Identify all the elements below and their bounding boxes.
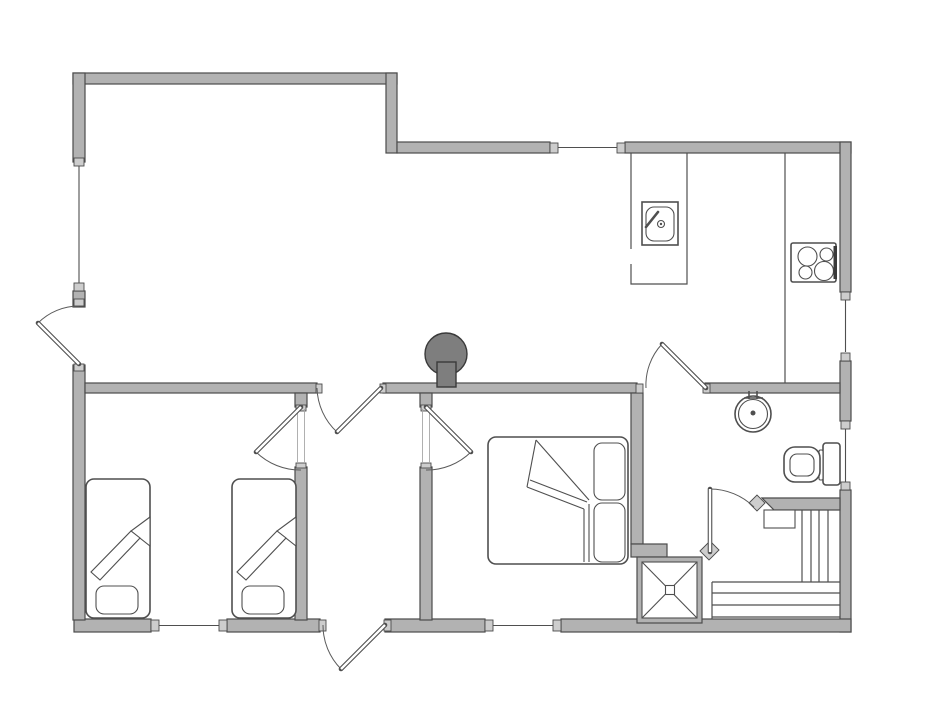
door-hallway-swing-arc	[317, 388, 337, 432]
wall-caps-cap	[485, 620, 493, 631]
exterior-walls-wall-bottom-3	[385, 619, 485, 632]
kitchen-sink	[642, 202, 678, 245]
door-terrace-leaf	[38, 323, 79, 364]
exterior-walls-wall-left-jog	[386, 73, 397, 153]
bed-single-left-pillow	[96, 586, 138, 614]
stove-cooktop-burner-large	[815, 262, 834, 281]
wall-caps-cap	[550, 143, 558, 153]
bed-single-right-pillow	[242, 586, 284, 614]
wall-caps-cap	[151, 620, 159, 631]
door-master-bedroom-swing-arc	[426, 452, 471, 470]
kitchen-sink-drain-dot	[660, 223, 662, 225]
door-entrance	[323, 625, 385, 669]
wall-caps-cap	[74, 158, 84, 166]
interior-walls-wall-bedrooms-top	[85, 383, 317, 393]
bed-double-pillow	[594, 503, 625, 562]
exterior-walls-wall-top-mid	[397, 142, 550, 153]
bed-double-pillow	[594, 443, 625, 500]
floor-plan-canvas	[0, 0, 927, 714]
door-sauna-swing-arc	[710, 489, 754, 507]
door-bathroom-leaf	[662, 344, 706, 388]
wall-caps-cap	[841, 421, 850, 429]
door-entrance-swing-arc	[323, 625, 341, 669]
bed-single-right	[232, 479, 296, 618]
sauna-heater-heater	[764, 510, 795, 528]
exterior-walls-wall-bottom-1	[74, 619, 151, 632]
stove-cooktop-burner-small	[799, 266, 812, 279]
washbasin	[735, 391, 771, 432]
wall-caps-cap	[636, 384, 643, 393]
interior-walls-wall-bath-top	[705, 383, 840, 393]
wall-caps-cap	[617, 143, 625, 153]
exterior-walls-wall-right-upper	[840, 142, 851, 292]
fireplace-flue	[437, 362, 456, 387]
shower	[637, 557, 702, 623]
exterior-walls-wall-left-lower	[73, 365, 85, 620]
exterior-walls-wall-bottom-2	[227, 619, 320, 632]
wall-caps-cap	[74, 283, 84, 291]
stove-cooktop-panel	[834, 246, 838, 279]
sauna-bench-lower	[712, 582, 840, 619]
interior-walls-partition-master	[420, 467, 432, 620]
door-bedroom	[256, 407, 301, 470]
door-bathroom-swing-arc	[646, 344, 662, 388]
exterior-walls-wall-left-upper	[73, 73, 85, 162]
door-bedroom-swing-arc	[256, 452, 301, 470]
stove-cooktop-burner-small	[820, 248, 833, 261]
stove-cooktop	[791, 243, 837, 282]
door-bathroom	[646, 344, 706, 388]
wall-caps-cap	[553, 620, 561, 631]
toilet-cistern	[823, 443, 840, 485]
door-hallway	[317, 388, 381, 432]
door-entrance-leaf	[341, 625, 385, 669]
interior-walls-wall-center-top	[383, 383, 637, 393]
bed-single-left	[86, 479, 150, 618]
washbasin-drain-dot	[751, 411, 756, 416]
interior-walls-wall-master-bath	[631, 393, 643, 544]
toilet	[784, 443, 840, 485]
wall-caps-cap	[421, 463, 431, 468]
wall-caps-cap	[841, 353, 850, 361]
door-terrace-swing-arc	[38, 306, 79, 323]
shower-drain	[666, 586, 675, 595]
door-terrace	[38, 306, 79, 364]
door-sauna	[710, 489, 754, 552]
bed-double	[488, 437, 628, 564]
wall-caps-cap	[219, 620, 227, 631]
exterior-walls-wall-top-right	[625, 142, 851, 153]
wall-caps-cap	[74, 299, 84, 306]
door-hallway-leaf	[337, 388, 381, 432]
door-master-bedroom	[426, 407, 471, 470]
floor-plan-drawing	[0, 0, 927, 714]
exterior-walls-wall-top-left	[73, 73, 397, 84]
door-reveals	[298, 409, 430, 463]
sauna-bench-upper	[802, 510, 828, 582]
interior-walls	[85, 383, 840, 620]
interior-walls-wall-shower-jog	[631, 544, 667, 557]
wall-caps-cap	[841, 482, 850, 490]
sauna-heater	[764, 510, 795, 528]
kitchen-counter	[631, 153, 785, 383]
exterior-walls-wall-bottom-4	[561, 619, 851, 632]
interior-walls-wall-sauna	[762, 498, 840, 510]
door-master-bedroom-leaf	[426, 407, 471, 452]
exterior-walls-wall-right-lower	[840, 490, 851, 632]
fireplace	[425, 333, 467, 387]
wall-caps-cap	[296, 463, 306, 468]
toilet-bowl-inner	[790, 454, 814, 476]
door-bedroom-leaf	[256, 407, 301, 452]
wall-caps-cap	[841, 292, 850, 300]
stove-cooktop-burner-large	[798, 247, 817, 266]
exterior-walls-wall-right-mid	[840, 361, 851, 421]
